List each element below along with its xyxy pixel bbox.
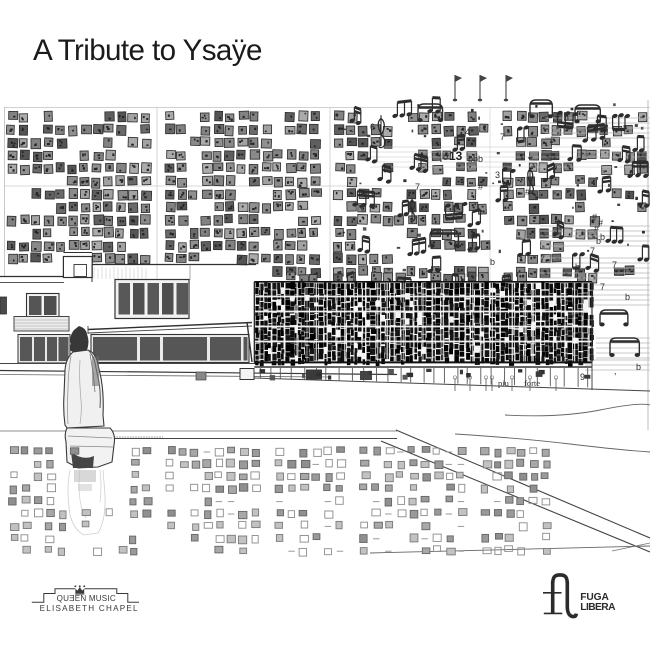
svg-text:7: 7 <box>540 254 545 264</box>
svg-text:piu: piu <box>498 378 510 388</box>
svg-text:13: 13 <box>449 149 463 163</box>
svg-text:7: 7 <box>500 132 505 142</box>
svg-text:b: b <box>575 262 580 272</box>
svg-text:7: 7 <box>590 246 595 256</box>
svg-text:,: , <box>614 366 617 376</box>
svg-text:#: # <box>478 182 483 192</box>
svg-text:9: 9 <box>580 372 585 382</box>
svg-text:b: b <box>490 257 495 267</box>
svg-text:forte: forte <box>524 378 540 388</box>
svg-text:7: 7 <box>600 282 605 292</box>
svg-text:b: b <box>596 236 601 246</box>
svg-text:ELISABETH CHAPEL: ELISABETH CHAPEL <box>40 604 139 613</box>
svg-text:7: 7 <box>415 182 420 192</box>
svg-text:#: # <box>594 224 599 234</box>
svg-text:bbb: bbb <box>468 154 483 164</box>
svg-text:3: 3 <box>495 170 500 180</box>
svg-text:6: 6 <box>370 122 375 132</box>
svg-text:7: 7 <box>612 260 617 270</box>
svg-text:LIBERA: LIBERA <box>580 602 616 613</box>
svg-text:b: b <box>636 362 641 372</box>
svg-text:o: o <box>443 152 448 162</box>
svg-text:#: # <box>525 187 530 197</box>
svg-text:b: b <box>625 292 630 302</box>
svg-text:4: 4 <box>465 127 470 137</box>
svg-text:QUƎEN MUSIC: QUƎEN MUSIC <box>57 594 116 603</box>
